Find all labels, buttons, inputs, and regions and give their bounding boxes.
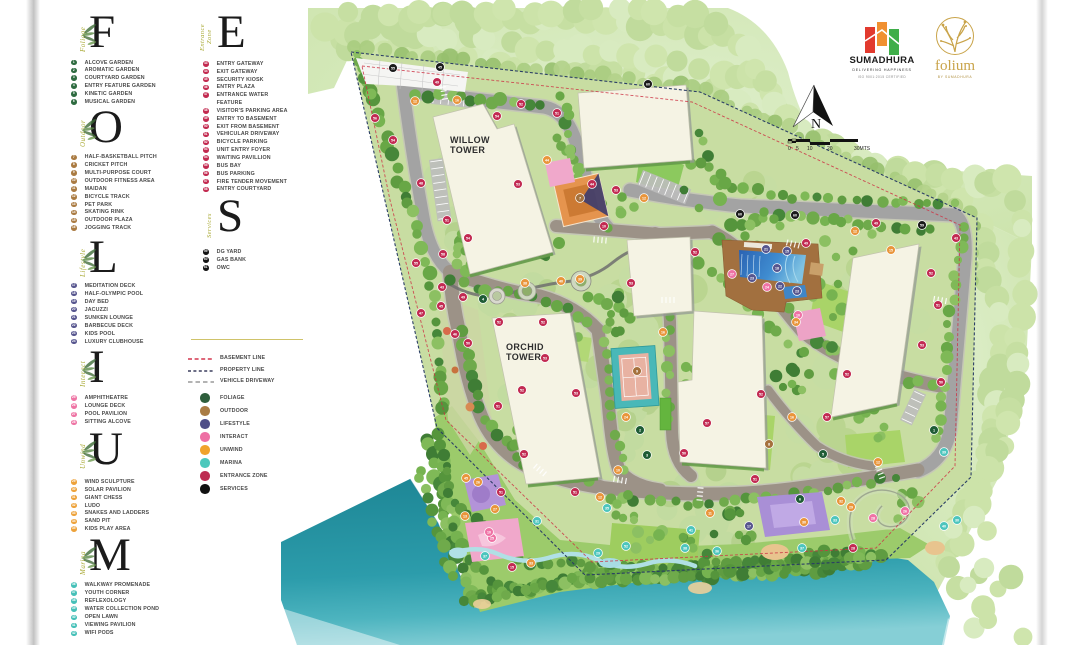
svg-text:12: 12 [876,460,880,464]
svg-text:25: 25 [490,536,494,540]
svg-text:30MTS: 30MTS [854,146,871,152]
svg-text:11: 11 [708,511,712,515]
svg-text:WILLOW: WILLOW [450,135,490,145]
svg-text:51: 51 [496,404,500,408]
svg-text:10: 10 [616,468,620,472]
svg-text:ORCHID: ORCHID [506,342,544,352]
svg-text:ISO 9001:2015 CERTIFIED: ISO 9001:2015 CERTIFIED [858,75,907,79]
svg-text:9: 9 [636,369,638,373]
svg-text:57: 57 [705,421,709,425]
svg-text:26: 26 [476,480,480,484]
svg-text:22: 22 [778,284,782,288]
svg-text:10: 10 [602,224,606,228]
svg-text:36: 36 [715,549,719,553]
svg-text:43: 43 [954,236,958,240]
svg-text:N: N [811,117,821,132]
svg-text:TOWER: TOWER [450,145,485,155]
svg-text:54: 54 [391,138,395,142]
svg-text:13: 13 [463,514,467,518]
svg-text:folium: folium [935,58,975,74]
svg-text:44: 44 [590,182,594,186]
svg-text:53: 53 [574,391,578,395]
svg-text:15: 15 [510,565,514,569]
svg-text:5: 5 [822,452,824,456]
svg-text:31: 31 [535,519,539,523]
svg-text:53: 53 [516,182,520,186]
svg-text:33: 33 [833,518,837,522]
svg-text:43: 43 [440,285,444,289]
svg-text:1: 1 [933,428,935,432]
svg-text:27: 27 [493,507,497,511]
svg-text:37: 37 [800,546,804,550]
svg-text:23: 23 [795,289,799,293]
svg-text:12: 12 [853,229,857,233]
svg-text:DELIVERING HAPPINESS: DELIVERING HAPPINESS [852,68,911,72]
svg-text:15: 15 [889,248,893,252]
svg-text:20: 20 [827,146,833,152]
svg-text:53: 53 [629,281,633,285]
svg-text:52: 52 [519,102,523,106]
svg-text:30: 30 [802,520,806,524]
svg-text:41: 41 [689,528,693,532]
svg-text:8: 8 [768,442,770,446]
svg-text:35: 35 [605,506,609,510]
svg-text:55: 55 [391,66,395,70]
svg-text:24: 24 [765,285,769,289]
svg-text:51: 51 [753,477,757,481]
svg-text:52: 52 [497,320,501,324]
svg-text:54: 54 [466,236,470,240]
svg-text:52: 52 [759,392,763,396]
svg-text:40: 40 [942,524,946,528]
svg-text:6: 6 [799,497,801,501]
svg-text:51: 51 [499,490,503,494]
svg-text:53: 53 [614,188,618,192]
svg-text:12: 12 [598,495,602,499]
svg-text:51: 51 [445,218,449,222]
svg-text:17: 17 [747,524,751,528]
svg-text:53: 53 [920,343,924,347]
svg-text:16: 16 [661,330,665,334]
svg-text:48: 48 [419,181,423,185]
svg-text:29: 29 [596,551,600,555]
svg-text:12: 12 [413,99,417,103]
svg-text:56: 56 [373,116,377,120]
svg-text:45: 45 [438,65,442,69]
svg-text:23: 23 [750,276,754,280]
svg-text:24: 24 [624,415,628,419]
svg-text:SUMADHURA: SUMADHURA [850,55,915,66]
svg-text:54: 54 [495,114,499,118]
svg-text:52: 52 [693,250,697,254]
svg-text:16: 16 [790,415,794,419]
svg-text:47: 47 [419,311,423,315]
svg-text:57: 57 [825,415,829,419]
svg-text:30: 30 [955,518,959,522]
svg-text:45: 45 [439,304,443,308]
svg-text:12: 12 [642,196,646,200]
svg-text:BY SUMADHURA: BY SUMADHURA [938,75,973,79]
svg-text:39: 39 [578,277,582,281]
svg-text:15: 15 [785,249,789,253]
svg-text:18: 18 [775,266,779,270]
svg-text:51: 51 [936,303,940,307]
svg-text:60: 60 [793,213,797,217]
svg-text:21: 21 [764,247,768,251]
svg-text:45: 45 [464,476,468,480]
svg-text:37: 37 [483,554,487,558]
svg-text:52: 52 [541,320,545,324]
svg-text:50: 50 [939,380,943,384]
svg-text:58: 58 [441,252,445,256]
svg-text:10: 10 [807,146,813,152]
svg-text:28: 28 [851,546,855,550]
svg-text:52: 52 [624,544,628,548]
svg-text:49: 49 [461,295,465,299]
svg-text:51: 51 [573,490,577,494]
svg-text:52: 52 [522,452,526,456]
svg-text:60: 60 [738,212,742,216]
svg-text:49: 49 [435,80,439,84]
svg-text:51: 51 [555,111,559,115]
svg-text:60: 60 [646,82,650,86]
svg-text:7: 7 [579,196,581,200]
svg-text:28: 28 [871,516,875,520]
svg-text:44: 44 [545,158,549,162]
svg-text:50: 50 [682,451,686,455]
svg-text:52: 52 [845,372,849,376]
svg-text:49: 49 [804,241,808,245]
svg-text:52: 52 [929,271,933,275]
svg-text:39: 39 [942,450,946,454]
svg-text:TOWER: TOWER [506,352,541,362]
svg-text:10: 10 [796,313,800,317]
svg-text:29: 29 [849,505,853,509]
svg-text:5: 5 [796,146,799,152]
svg-text:0: 0 [788,146,791,152]
svg-text:33: 33 [529,561,533,565]
svg-text:40: 40 [559,279,563,283]
svg-text:50: 50 [466,341,470,345]
svg-text:59: 59 [920,223,924,227]
svg-text:53: 53 [543,356,547,360]
svg-text:38: 38 [523,281,527,285]
svg-text:27: 27 [730,272,734,276]
svg-text:52: 52 [520,388,524,392]
svg-text:46: 46 [453,332,457,336]
svg-text:34: 34 [794,320,798,324]
svg-text:10: 10 [487,530,491,534]
svg-text:3: 3 [646,453,648,457]
svg-text:26: 26 [903,509,907,513]
svg-text:2: 2 [639,428,641,432]
svg-text:16: 16 [455,98,459,102]
svg-text:55: 55 [414,261,418,265]
svg-text:32: 32 [839,499,843,503]
svg-text:49: 49 [874,221,878,225]
svg-text:38: 38 [683,546,687,550]
